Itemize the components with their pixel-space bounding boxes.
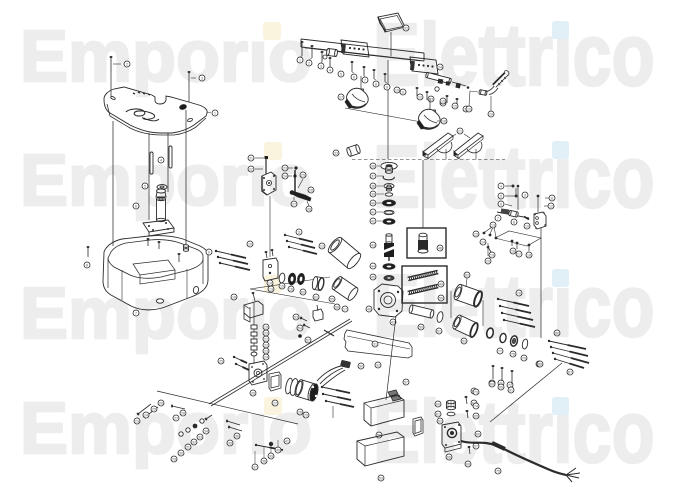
- svg-text:23: 23: [264, 349, 268, 353]
- svg-text:24: 24: [283, 174, 287, 178]
- svg-text:27: 27: [292, 202, 296, 206]
- svg-text:11: 11: [550, 196, 554, 200]
- svg-text:23: 23: [135, 419, 139, 423]
- svg-text:37: 37: [371, 174, 375, 178]
- svg-text:20: 20: [489, 112, 493, 116]
- svg-text:24: 24: [144, 413, 148, 417]
- svg-text:27: 27: [273, 401, 277, 405]
- svg-text:27: 27: [174, 416, 178, 420]
- svg-text:6: 6: [353, 75, 355, 79]
- svg-text:30: 30: [359, 364, 363, 368]
- svg-text:29: 29: [304, 413, 308, 417]
- svg-text:78: 78: [511, 352, 515, 356]
- svg-text:34: 34: [204, 429, 208, 433]
- svg-text:62: 62: [465, 273, 469, 277]
- svg-text:8: 8: [375, 82, 377, 86]
- svg-text:48: 48: [438, 246, 442, 250]
- svg-text:18: 18: [442, 119, 446, 123]
- svg-text:31: 31: [373, 342, 377, 346]
- svg-text:38: 38: [262, 459, 266, 463]
- svg-text:92: 92: [404, 26, 408, 30]
- svg-text:37: 37: [253, 465, 257, 469]
- svg-text:33: 33: [198, 435, 202, 439]
- svg-text:8: 8: [86, 263, 88, 267]
- svg-text:41: 41: [371, 210, 375, 214]
- svg-text:60: 60: [301, 290, 305, 294]
- svg-text:14: 14: [481, 240, 485, 244]
- svg-text:9: 9: [524, 193, 526, 197]
- svg-text:51: 51: [437, 329, 441, 333]
- svg-text:21: 21: [264, 337, 268, 341]
- svg-text:56: 56: [335, 305, 339, 309]
- svg-text:25: 25: [301, 173, 305, 177]
- svg-text:7: 7: [497, 216, 499, 220]
- svg-text:49: 49: [439, 282, 443, 286]
- svg-text:36: 36: [235, 434, 239, 438]
- svg-text:39: 39: [269, 454, 273, 458]
- svg-text:25: 25: [152, 407, 156, 411]
- svg-text:28: 28: [307, 207, 311, 211]
- svg-text:4: 4: [500, 184, 502, 188]
- svg-text:40: 40: [276, 448, 280, 452]
- svg-text:65: 65: [474, 414, 478, 418]
- svg-text:24: 24: [438, 65, 442, 69]
- svg-text:29: 29: [172, 457, 176, 461]
- svg-text:9: 9: [386, 85, 388, 89]
- svg-text:61: 61: [436, 412, 440, 416]
- svg-text:87: 87: [568, 370, 572, 374]
- svg-text:50: 50: [439, 296, 443, 300]
- svg-text:1: 1: [299, 58, 301, 62]
- svg-text:2: 2: [126, 62, 128, 66]
- svg-text:19: 19: [490, 253, 494, 257]
- svg-text:42: 42: [371, 219, 375, 223]
- svg-text:18: 18: [527, 253, 531, 257]
- svg-text:74: 74: [474, 404, 478, 408]
- svg-text:28: 28: [298, 410, 302, 414]
- svg-text:53: 53: [294, 315, 298, 319]
- svg-text:86: 86: [555, 331, 559, 335]
- svg-text:4: 4: [160, 158, 162, 162]
- svg-text:22: 22: [249, 167, 253, 171]
- svg-text:73: 73: [474, 390, 478, 394]
- svg-text:20: 20: [264, 331, 268, 335]
- svg-text:44: 44: [371, 264, 375, 268]
- svg-text:13: 13: [491, 223, 495, 227]
- svg-text:16: 16: [511, 249, 515, 253]
- svg-text:7: 7: [135, 311, 137, 315]
- svg-text:41: 41: [285, 439, 289, 443]
- svg-text:18: 18: [232, 295, 236, 299]
- svg-text:2: 2: [308, 61, 310, 65]
- svg-text:23: 23: [283, 166, 287, 170]
- svg-text:5: 5: [500, 194, 502, 198]
- svg-text:5: 5: [340, 72, 342, 76]
- svg-text:77: 77: [498, 349, 502, 353]
- svg-text:59: 59: [379, 476, 383, 480]
- svg-text:5: 5: [144, 184, 146, 188]
- svg-text:11: 11: [297, 230, 301, 234]
- svg-text:15: 15: [280, 284, 284, 288]
- svg-text:12: 12: [320, 244, 324, 248]
- svg-text:75: 75: [496, 469, 500, 473]
- svg-text:16: 16: [289, 287, 293, 291]
- svg-text:7: 7: [364, 78, 366, 82]
- svg-text:14: 14: [268, 281, 272, 285]
- svg-text:35: 35: [228, 441, 232, 445]
- svg-text:62: 62: [438, 419, 442, 423]
- svg-text:52: 52: [462, 339, 466, 343]
- svg-text:6: 6: [135, 204, 137, 208]
- svg-text:3: 3: [320, 64, 322, 68]
- svg-text:26: 26: [251, 391, 255, 395]
- svg-text:30: 30: [179, 451, 183, 455]
- svg-text:47: 47: [391, 320, 395, 324]
- svg-text:54: 54: [298, 326, 302, 330]
- svg-text:12: 12: [418, 95, 422, 99]
- svg-text:38: 38: [371, 184, 375, 188]
- svg-text:13: 13: [269, 287, 273, 291]
- svg-text:60: 60: [436, 402, 440, 406]
- svg-text:69: 69: [466, 462, 470, 466]
- svg-text:15: 15: [453, 104, 457, 108]
- svg-text:89: 89: [490, 382, 494, 386]
- svg-text:68: 68: [447, 455, 451, 459]
- svg-text:76: 76: [517, 291, 521, 295]
- svg-text:17: 17: [339, 95, 343, 99]
- svg-text:91: 91: [509, 388, 513, 392]
- svg-text:9: 9: [208, 250, 210, 254]
- svg-text:10: 10: [248, 242, 252, 246]
- svg-text:1: 1: [214, 111, 216, 115]
- svg-text:19: 19: [467, 107, 471, 111]
- svg-text:32: 32: [376, 363, 380, 367]
- svg-text:19: 19: [441, 99, 445, 103]
- svg-text:26: 26: [309, 188, 313, 192]
- svg-text:24: 24: [264, 355, 268, 359]
- svg-text:13: 13: [429, 97, 433, 101]
- svg-text:90: 90: [499, 385, 503, 389]
- svg-text:17: 17: [343, 307, 347, 311]
- svg-text:21: 21: [249, 156, 253, 160]
- svg-text:40: 40: [371, 201, 375, 205]
- svg-text:36: 36: [371, 164, 375, 168]
- svg-text:57: 57: [404, 380, 408, 384]
- svg-text:66: 66: [476, 432, 480, 436]
- svg-text:43: 43: [371, 243, 375, 247]
- svg-text:4: 4: [329, 68, 331, 72]
- svg-text:32: 32: [192, 440, 196, 444]
- svg-text:88: 88: [538, 362, 542, 366]
- svg-text:26: 26: [159, 401, 163, 405]
- svg-text:39: 39: [371, 192, 375, 196]
- svg-text:3: 3: [201, 76, 203, 80]
- svg-text:61: 61: [314, 295, 318, 299]
- svg-text:17: 17: [517, 252, 521, 256]
- svg-text:45: 45: [371, 275, 375, 279]
- svg-text:19: 19: [264, 325, 268, 329]
- svg-text:15: 15: [474, 232, 478, 236]
- svg-text:57: 57: [306, 338, 310, 342]
- svg-text:67: 67: [474, 444, 478, 448]
- svg-text:31: 31: [186, 445, 190, 449]
- svg-text:21: 21: [458, 129, 462, 133]
- svg-text:50: 50: [419, 325, 423, 329]
- svg-text:20: 20: [486, 259, 490, 263]
- svg-text:10: 10: [395, 88, 399, 92]
- svg-text:33: 33: [334, 151, 338, 155]
- svg-text:8: 8: [513, 220, 515, 224]
- svg-text:46: 46: [367, 307, 371, 311]
- svg-text:79: 79: [522, 356, 526, 360]
- svg-text:11: 11: [401, 90, 405, 94]
- svg-text:10: 10: [525, 224, 529, 228]
- svg-text:25: 25: [219, 359, 223, 363]
- svg-text:6: 6: [500, 202, 502, 206]
- svg-text:12: 12: [549, 204, 553, 208]
- svg-text:22: 22: [264, 343, 268, 347]
- svg-text:28: 28: [181, 411, 185, 415]
- svg-text:55: 55: [330, 297, 334, 301]
